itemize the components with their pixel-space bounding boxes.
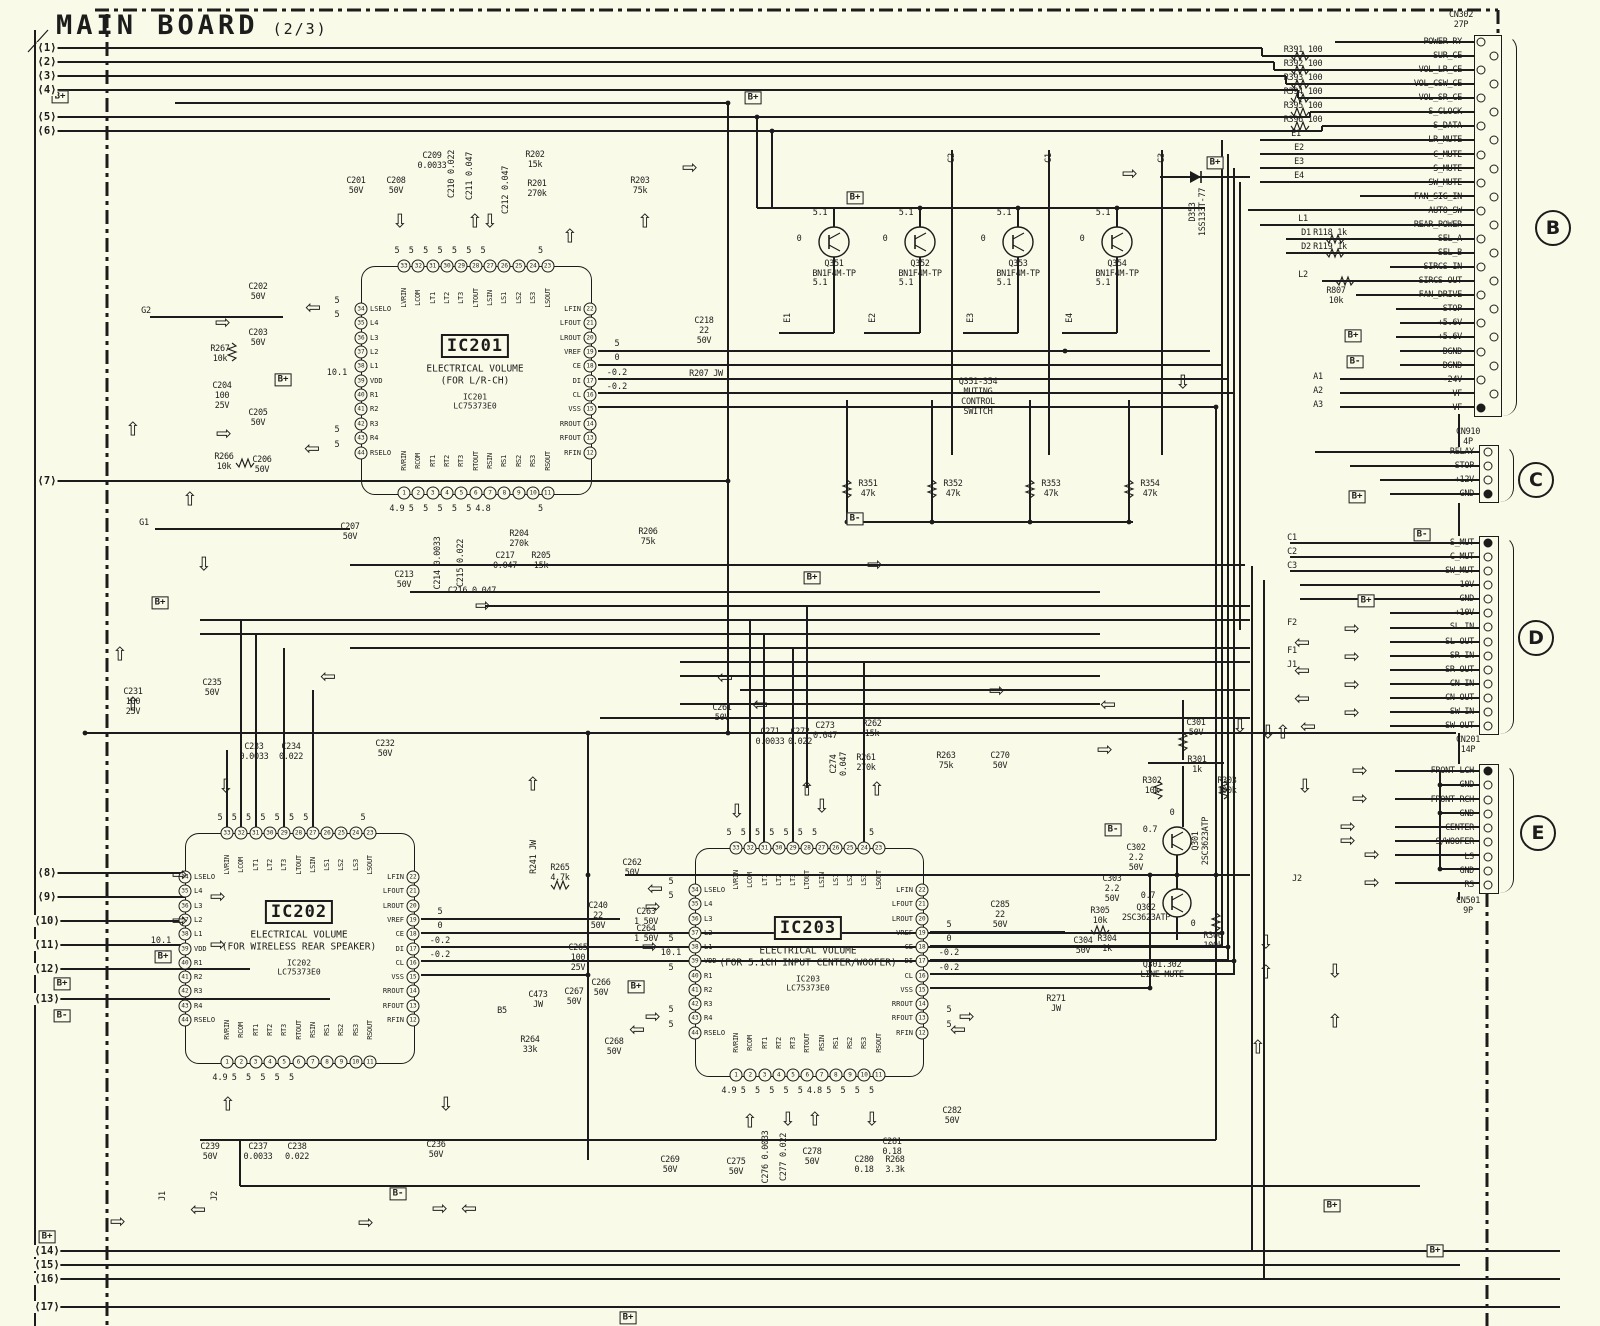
ic-pin-name: RCOM <box>746 1035 754 1051</box>
ic-pin: 26 <box>321 827 334 840</box>
ic-pin: 29 <box>278 827 291 840</box>
power-tag-bplus: B+ <box>54 977 71 990</box>
resistor-symbol <box>1291 108 1309 116</box>
transistor-collector <box>915 233 926 239</box>
resistor-symbol <box>551 881 569 889</box>
connector-bracket <box>1500 764 1514 893</box>
connector-pin <box>1477 375 1486 384</box>
ic-pin-name: VDD <box>194 945 207 953</box>
signal-flow-arrow-d: ⇩ <box>482 213 498 232</box>
ic-pin-name: L2 <box>194 916 202 924</box>
junction-dot <box>1016 206 1021 211</box>
ic-pin-name: RFOUT <box>853 1014 913 1022</box>
ic-pin-name: RROUT <box>521 420 581 428</box>
ic-pin-name: R1 <box>194 959 202 967</box>
junction-dot <box>1115 206 1120 211</box>
ic-pin: 43 <box>179 999 192 1012</box>
ic-desc: LC75373E0 <box>277 968 320 977</box>
ic-pin: 42 <box>355 417 368 430</box>
ic-pin-name: R1 <box>370 391 378 399</box>
ic-pin: 6 <box>801 1069 814 1082</box>
junction-dot <box>1438 867 1443 872</box>
section-marker-B: B <box>1535 210 1571 246</box>
resistor-symbol <box>1220 781 1228 799</box>
connector-pin <box>1477 178 1486 187</box>
signal-flow-arrow-d: ⇩ <box>1232 718 1248 737</box>
connector-pin <box>1490 136 1499 145</box>
ic-pin-name: LROUT <box>344 902 404 910</box>
ic-pin: 1 <box>221 1056 234 1069</box>
resistor-symbol <box>1291 66 1309 74</box>
ic-pin-name: L4 <box>704 900 712 908</box>
signal-flow-arrow-r: ⇨ <box>645 1008 661 1027</box>
transistor-collector <box>1172 832 1183 838</box>
junction-dot <box>1127 520 1132 525</box>
transistor-emitter <box>1172 906 1183 912</box>
junction-dot <box>726 479 731 484</box>
ic-pin-name: LSELO <box>194 873 215 881</box>
ic-pin-name: LT1 <box>252 859 260 871</box>
connector-pin <box>1484 637 1493 646</box>
pin-value: 5 <box>275 813 280 823</box>
power-tag-bplus: B+ <box>155 950 172 963</box>
ic-pin: 38 <box>355 360 368 373</box>
junction-dot <box>930 520 935 525</box>
connector-pin <box>1484 623 1493 632</box>
ic-desc: LC75373E0 <box>453 402 496 411</box>
junction-dot <box>1148 873 1153 878</box>
pin-value: 5 <box>452 246 457 256</box>
signal-flow-arrow-r: ⇨ <box>1364 874 1380 893</box>
signal-flow-arrow-u: ⇧ <box>799 781 815 800</box>
signal-flow-arrow-u: ⇧ <box>869 781 885 800</box>
resistor-symbol <box>1336 277 1354 285</box>
pin-value: 5 <box>423 246 428 256</box>
resistor-symbol <box>1125 480 1133 498</box>
signal-flow-arrow-u: ⇧ <box>182 491 198 510</box>
ic-pin-name: RTOUT <box>295 1020 303 1040</box>
connector-pin <box>1477 206 1486 215</box>
signal-flow-arrow-r: ⇨ <box>1122 165 1138 184</box>
ic-pin-name: LTOUT <box>472 288 480 308</box>
pin-value: 5 <box>668 877 673 887</box>
junction-dot <box>918 206 923 211</box>
ic-pin-name: L3 <box>194 902 202 910</box>
junction-dot <box>586 731 591 736</box>
signal-flow-arrow-d: ⇩ <box>438 1096 454 1115</box>
signal-flow-arrow-l: ⇦ <box>717 669 733 688</box>
junction-dot <box>1214 873 1219 878</box>
power-tag-bminus: B- <box>1414 528 1431 541</box>
pin-value: 5 <box>668 1020 673 1030</box>
pin-value: 10.1 <box>327 368 347 378</box>
connector-pin <box>1484 581 1493 590</box>
ic-desc: (FOR 5.1CH INPUT CENTER/WOOFER) <box>719 958 896 969</box>
connector-pin <box>1477 66 1486 75</box>
signal-flow-arrow-r: ⇨ <box>1097 741 1113 760</box>
connector-pin <box>1477 94 1486 103</box>
signal-flow-arrow-r: ⇨ <box>642 938 658 957</box>
edge-connector-1: ⟨1⟩ <box>37 42 58 54</box>
ic-pin-name: RSELO <box>370 449 391 457</box>
pin-value: 5 <box>869 1086 874 1096</box>
edge-connector-12: ⟨12⟩ <box>33 963 60 975</box>
signal-flow-arrow-l: ⇦ <box>752 696 768 715</box>
edge-connector-10: ⟨10⟩ <box>33 915 60 927</box>
ic-pin: 7 <box>815 1069 828 1082</box>
signal-flow-arrow-d: ⇩ <box>218 778 234 797</box>
ic-pin-name: LSELO <box>370 305 391 313</box>
ic-pin: 44 <box>179 1014 192 1027</box>
ic-pin-name: LSELO <box>704 886 725 894</box>
ic-desc: ELECTRICAL VOLUME <box>426 364 523 375</box>
ic-pin: 13 <box>584 432 597 445</box>
ic-pin-name: LROUT <box>853 915 913 923</box>
pin-value: 5 <box>437 504 442 514</box>
signal-flow-arrow-l: ⇦ <box>629 1021 645 1040</box>
ic-pin: 23 <box>541 260 554 273</box>
pin-value: 4.9 <box>389 504 404 514</box>
ic-pin-name: LFOUT <box>853 900 913 908</box>
transistor-symbol <box>1003 227 1033 257</box>
edge-connector-9: ⟨9⟩ <box>37 891 58 903</box>
junction-dot <box>1438 783 1443 788</box>
resistor-symbol <box>1291 94 1309 102</box>
signal-flow-arrow-l: ⇦ <box>1294 634 1310 653</box>
signal-flow-arrow-d: ⇩ <box>1297 778 1313 797</box>
signal-flow-arrow-l: ⇦ <box>190 1201 206 1220</box>
ic-pin-name: LSIN <box>486 290 494 306</box>
ic-pin: 27 <box>815 842 828 855</box>
ic-pin-name: VSS <box>344 973 404 981</box>
pin-value: 5 <box>289 1073 294 1083</box>
ic-pin-name: RVRIN <box>400 451 408 471</box>
pin-value: 5 <box>855 1086 860 1096</box>
ic-pin-name: LS3 <box>860 874 868 886</box>
ic-pin: 31 <box>426 260 439 273</box>
ic-pin-name: RVRIN <box>223 1020 231 1040</box>
resistor-symbol <box>1154 781 1162 799</box>
pin-value: 4.9 <box>212 1073 227 1083</box>
ic-pin: 8 <box>829 1069 842 1082</box>
edge-connector-2: ⟨2⟩ <box>37 56 58 68</box>
pin-value: 5 <box>303 813 308 823</box>
pin-value: 5 <box>668 891 673 901</box>
ic-pin: 34 <box>689 884 702 897</box>
connector-bracket <box>1500 445 1514 502</box>
ic-pin: 39 <box>689 955 702 968</box>
signal-flow-arrow-u: ⇧ <box>1275 724 1291 743</box>
ic-pin-name: LCOM <box>414 290 422 306</box>
ic-pin-name: LVRIN <box>400 288 408 308</box>
ic-pin: 27 <box>484 260 497 273</box>
pin-value: 5 <box>334 296 339 306</box>
connector-pin <box>1484 609 1493 618</box>
connector-pin <box>1477 263 1486 272</box>
ic-pin: 13 <box>916 1012 929 1025</box>
ic-pin-name: VREF <box>521 348 581 356</box>
ic-pin-name: VDD <box>704 957 717 965</box>
ic-pin: 9 <box>512 487 525 500</box>
connector-pin <box>1484 809 1493 818</box>
power-tag-bplus: B+ <box>847 191 864 204</box>
pin-value: 5 <box>423 504 428 514</box>
ic-pin-name: RT1 <box>429 455 437 467</box>
ic-pin-name: LFIN <box>344 873 404 881</box>
ic-pin-name: LVRIN <box>223 855 231 875</box>
pin-value: 5 <box>769 1086 774 1096</box>
ic-pin: 41 <box>355 403 368 416</box>
pin-value: 5 <box>466 246 471 256</box>
ic-pin-name: R2 <box>370 405 378 413</box>
ic-pin-name: R2 <box>704 986 712 994</box>
ic-pin-name: RSELO <box>704 1029 725 1037</box>
edge-connector-8: ⟨8⟩ <box>37 867 58 879</box>
ic-pin-name: RS1 <box>500 455 508 467</box>
resistor-symbol <box>843 480 851 498</box>
signal-flow-arrow-r: ⇨ <box>210 888 226 907</box>
connector-pin <box>1477 234 1486 243</box>
signal-flow-arrow-r: ⇨ <box>172 912 188 931</box>
pin-value: 5 <box>409 246 414 256</box>
connector-pin <box>1484 539 1493 548</box>
ic-pin: 30 <box>441 260 454 273</box>
pin-value: 5 <box>812 828 817 838</box>
pin-value: 5 <box>334 310 339 320</box>
pin-value: 5 <box>741 1086 746 1096</box>
ic-pin-name: RTOUT <box>472 451 480 471</box>
ic-pin-name: RROUT <box>344 987 404 995</box>
ic-pin: 26 <box>829 842 842 855</box>
transistor-collector <box>1172 894 1183 900</box>
ic-pin-name: CE <box>521 362 581 370</box>
pin-value: 5 <box>217 813 222 823</box>
schematic-canvas: MAIN BOARD(2/3) R391 100R392 100R393 100… <box>0 0 1600 1326</box>
ic-pin: 17 <box>584 374 597 387</box>
signal-flow-arrow-r: ⇨ <box>1364 846 1380 865</box>
ic-name-IC201: IC201 <box>441 334 509 358</box>
signal-flow-arrow-r: ⇨ <box>110 1213 126 1232</box>
ic-pin: 21 <box>916 898 929 911</box>
ic-pin: 17 <box>916 955 929 968</box>
connector-pin <box>1484 693 1493 702</box>
ic-pin-name: RFOUT <box>344 1002 404 1010</box>
ic-pin-name: LS3 <box>352 859 360 871</box>
ic-pin: 41 <box>179 971 192 984</box>
ic-pin-name: LFOUT <box>521 319 581 327</box>
transistor-collector <box>1013 233 1024 239</box>
ic-pin-name: RS2 <box>515 455 523 467</box>
edge-connector-4: ⟨4⟩ <box>37 84 58 96</box>
ic-pin: 32 <box>744 842 757 855</box>
ic-pin-name: L2 <box>370 348 378 356</box>
pin-value: 5 <box>289 813 294 823</box>
ic-pin: 22 <box>916 884 929 897</box>
connector-pin <box>1490 389 1499 398</box>
ic-pin-name: R2 <box>194 973 202 981</box>
ic-pin: 2 <box>412 487 425 500</box>
ic-pin-name: LT3 <box>789 874 797 886</box>
edge-connector-14: ⟨14⟩ <box>33 1245 60 1257</box>
ic-pin: 10 <box>858 1069 871 1082</box>
ic-pin-name: VDD <box>370 377 383 385</box>
ic-pin: 34 <box>355 303 368 316</box>
ic-pin: 38 <box>689 941 702 954</box>
ic-pin: 27 <box>306 827 319 840</box>
ic-pin-name: VSS <box>521 405 581 413</box>
ic-pin-name: LS2 <box>846 874 854 886</box>
power-tag-bplus: B+ <box>1358 594 1375 607</box>
pin-value: 0 <box>614 353 619 363</box>
power-tag-bplus: B+ <box>39 1230 56 1243</box>
edge-connector-15: ⟨15⟩ <box>33 1259 60 1271</box>
power-tag-bminus: B- <box>1105 823 1122 836</box>
ic-pin-name: RFIN <box>521 449 581 457</box>
resistor-symbol <box>1291 122 1309 130</box>
power-tag-bminus: B- <box>847 512 864 525</box>
transistor-emitter <box>829 245 840 251</box>
junction-dot <box>1148 986 1153 991</box>
connector-pin <box>1484 595 1493 604</box>
ic-pin: 20 <box>407 899 420 912</box>
ic-desc: (FOR L/R-CH) <box>441 376 510 387</box>
ic-pin-name: LT2 <box>266 859 274 871</box>
connector-pin <box>1484 722 1493 731</box>
ic-pin: 5 <box>278 1056 291 1069</box>
section-marker-D: D <box>1518 620 1554 656</box>
signal-flow-arrow-r: ⇨ <box>1344 676 1360 695</box>
connector-pin <box>1490 277 1499 286</box>
ic-pin: 13 <box>407 999 420 1012</box>
power-tag-bminus: B- <box>54 1009 71 1022</box>
ic-pin: 43 <box>355 432 368 445</box>
ic-pin-name: RROUT <box>853 1000 913 1008</box>
signal-flow-arrow-l: ⇦ <box>950 1021 966 1040</box>
pin-value: 5 <box>614 339 619 349</box>
ic-pin-name: LFOUT <box>344 887 404 895</box>
section-marker-C: C <box>1518 462 1554 498</box>
ic-pin: 14 <box>584 417 597 430</box>
ic-pin: 6 <box>469 487 482 500</box>
signal-flow-arrow-u: ⇧ <box>1258 964 1274 983</box>
pin-value: 5 <box>260 813 265 823</box>
ic-pin-name: LT2 <box>775 874 783 886</box>
connector-pin <box>1484 838 1493 847</box>
power-tag-bplus: B+ <box>804 571 821 584</box>
ic-pin: 20 <box>916 912 929 925</box>
ic-pin-name: RSIN <box>818 1035 826 1051</box>
ic-pin-name: R3 <box>704 1000 712 1008</box>
ic-pin: 42 <box>689 998 702 1011</box>
signal-flow-arrow-r: ⇨ <box>1352 762 1368 781</box>
edge-connector-11: ⟨11⟩ <box>33 939 60 951</box>
transistor-emitter <box>1013 245 1024 251</box>
ic-pin-name: LFIN <box>853 886 913 894</box>
signal-flow-arrow-u: ⇧ <box>125 421 141 440</box>
ic-pin: 17 <box>407 942 420 955</box>
pin-value: -0.2 <box>607 368 627 378</box>
pin-value: 5 <box>232 1073 237 1083</box>
ic-pin-name: R4 <box>704 1014 712 1022</box>
ic-pin-name: RCOM <box>414 453 422 469</box>
connector-pin <box>1490 361 1499 370</box>
signal-flow-arrow-l: ⇦ <box>1300 718 1316 737</box>
signal-flow-arrow-l: ⇦ <box>304 440 320 459</box>
power-tag-bplus: B+ <box>275 373 292 386</box>
ic-desc: IC201 <box>463 393 487 402</box>
pin-value: 5 <box>668 963 673 973</box>
signal-flow-arrow-r: ⇨ <box>358 1214 374 1233</box>
ic-pin-name: CL <box>344 959 404 967</box>
ic-pin-name: R4 <box>194 1002 202 1010</box>
transistor-symbol <box>1102 227 1132 257</box>
transistor-emitter <box>1172 844 1183 850</box>
junction-dot <box>1232 959 1237 964</box>
resistor-symbol <box>1291 52 1309 60</box>
ic-pin: 33 <box>730 842 743 855</box>
connector-pin <box>1484 767 1493 776</box>
power-tag-bminus: B- <box>390 1187 407 1200</box>
junction-dot <box>1438 811 1443 816</box>
ic-pin: 19 <box>916 926 929 939</box>
resistor-symbol <box>228 343 236 361</box>
transistor-symbol <box>1163 827 1191 855</box>
pin-value: 5 <box>946 920 951 930</box>
ic-pin-name: RVRIN <box>732 1033 740 1053</box>
signal-flow-arrow-d: ⇩ <box>729 803 745 822</box>
pin-value: 5 <box>452 504 457 514</box>
junction-dot <box>586 873 591 878</box>
ic-pin-name: R1 <box>704 972 712 980</box>
ic-pin: 18 <box>407 928 420 941</box>
signal-flow-arrow-u: ⇧ <box>1250 1039 1266 1058</box>
ic-pin-name: RS3 <box>352 1024 360 1036</box>
ic-pin: 9 <box>844 1069 857 1082</box>
ic-pin-name: CE <box>853 943 913 951</box>
ic-pin: 28 <box>469 260 482 273</box>
ic-pin-name: RT2 <box>266 1024 274 1036</box>
power-tag-bplus: B+ <box>620 1311 637 1324</box>
signal-flow-arrow-l: ⇦ <box>1100 696 1116 715</box>
pin-value: 5 <box>755 1086 760 1096</box>
connector-pin <box>1477 38 1486 47</box>
pin-value: -0.2 <box>430 936 450 946</box>
ic-pin: 37 <box>689 926 702 939</box>
ic-pin-name: LS3 <box>529 292 537 304</box>
connector-bracket <box>1503 35 1517 416</box>
ic-pin: 40 <box>179 956 192 969</box>
signal-flow-arrow-u: ⇧ <box>637 213 653 232</box>
ic-pin: 15 <box>407 971 420 984</box>
ic-pin: 22 <box>407 871 420 884</box>
connector-pin <box>1477 403 1486 412</box>
power-tag-bplus: B+ <box>1324 1199 1341 1212</box>
edge-connector-17: ⟨17⟩ <box>33 1301 60 1313</box>
power-tag-bminus: B- <box>1347 355 1364 368</box>
signal-flow-arrow-d: ⇩ <box>196 556 212 575</box>
ic-pin: 3 <box>249 1056 262 1069</box>
ic-pin-name: LVRIN <box>732 870 740 890</box>
diode-symbol <box>1190 171 1201 183</box>
ic-pin: 16 <box>407 956 420 969</box>
ic-desc: (FOR WIRELESS REAR SPEAKER) <box>222 942 376 953</box>
edge-connector-6: ⟨6⟩ <box>37 125 58 137</box>
ic-pin: 11 <box>364 1056 377 1069</box>
ic-pin-name: LSOUT <box>366 855 374 875</box>
ic-pin: 12 <box>916 1026 929 1039</box>
ic-name-IC202: IC202 <box>265 900 333 924</box>
ic-pin: 24 <box>527 260 540 273</box>
